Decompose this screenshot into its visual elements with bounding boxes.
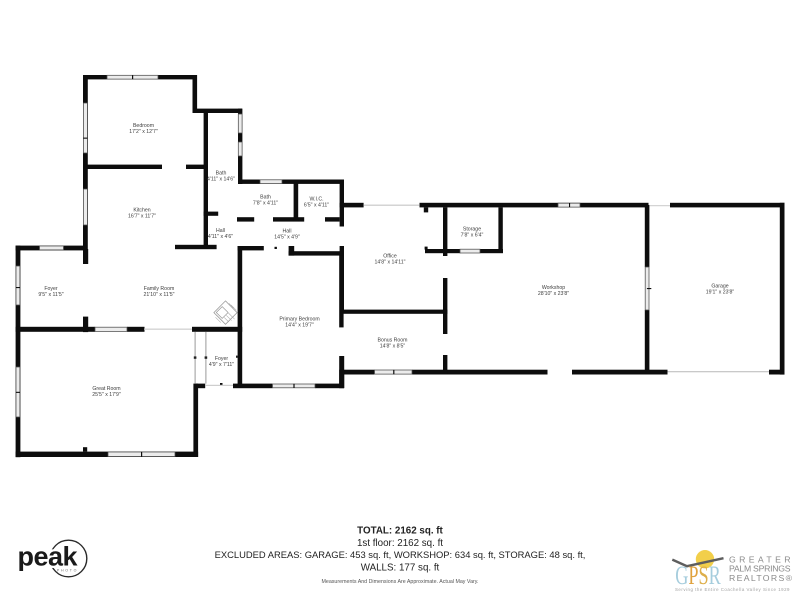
svg-text:GPSR: GPSR: [675, 561, 721, 590]
svg-text:PHOTO: PHOTO: [57, 568, 78, 572]
svg-text:REALTORS®: REALTORS®: [729, 573, 793, 583]
svg-text:Bedroom17'2" x 12'7": Bedroom17'2" x 12'7": [129, 123, 158, 135]
svg-text:peak: peak: [18, 541, 79, 571]
svg-text:PALM SPRINGS: PALM SPRINGS: [729, 564, 791, 574]
svg-text:Family Room21'10" x 11'5": Family Room21'10" x 11'5": [144, 286, 175, 298]
svg-text:Storage7'8" x 6'4": Storage7'8" x 6'4": [461, 226, 484, 238]
svg-text:Great Room25'5" x 17'9": Great Room25'5" x 17'9": [92, 386, 121, 398]
svg-text:Measurements And Dimensions Ar: Measurements And Dimensions Are Approxim…: [321, 579, 478, 585]
svg-text:TOTAL: 2162 sq. ft: TOTAL: 2162 sq. ft: [357, 526, 443, 537]
svg-text:Bonus Room14'8" x 8'5": Bonus Room14'8" x 8'5": [378, 337, 408, 349]
svg-text:Serving the Entire Coachella V: Serving the Entire Coachella Valley Sinc…: [675, 587, 790, 592]
svg-text:Primary Bedroom14'4" x 19'7": Primary Bedroom14'4" x 19'7": [279, 316, 319, 328]
svg-text:EXCLUDED AREAS: GARAGE: 453 sq: EXCLUDED AREAS: GARAGE: 453 sq. ft, WORK…: [215, 549, 586, 560]
svg-text:WALLS: 177 sq. ft: WALLS: 177 sq. ft: [361, 562, 440, 573]
svg-text:Workshop28'10" x 23'8": Workshop28'10" x 23'8": [538, 285, 569, 297]
svg-text:1st floor: 2162 sq. ft: 1st floor: 2162 sq. ft: [357, 538, 443, 549]
